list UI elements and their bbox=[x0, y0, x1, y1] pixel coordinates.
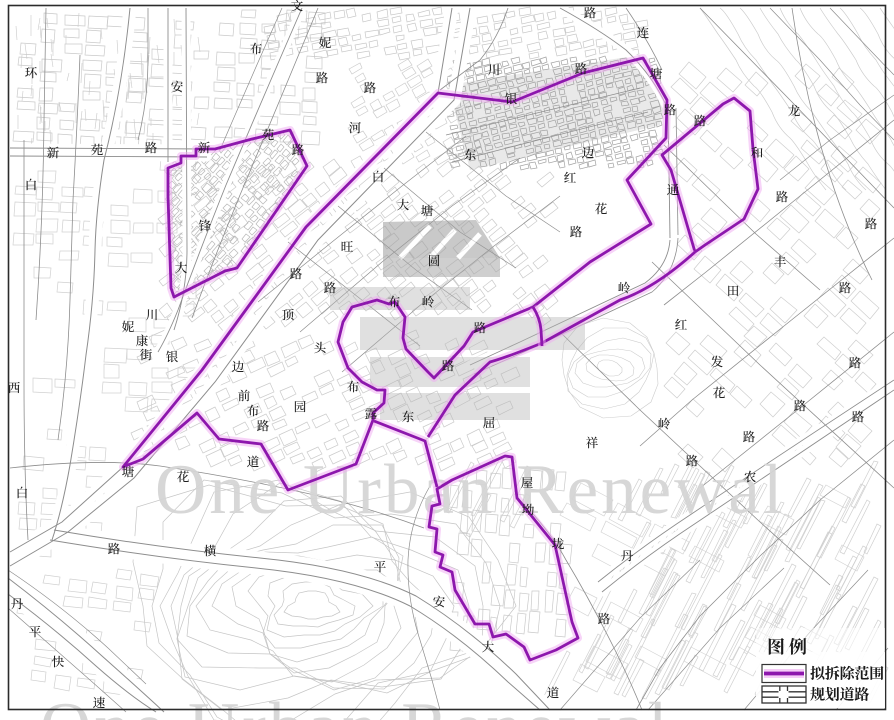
svg-text:One Urban Renewal: One Urban Renewal bbox=[40, 689, 671, 720]
